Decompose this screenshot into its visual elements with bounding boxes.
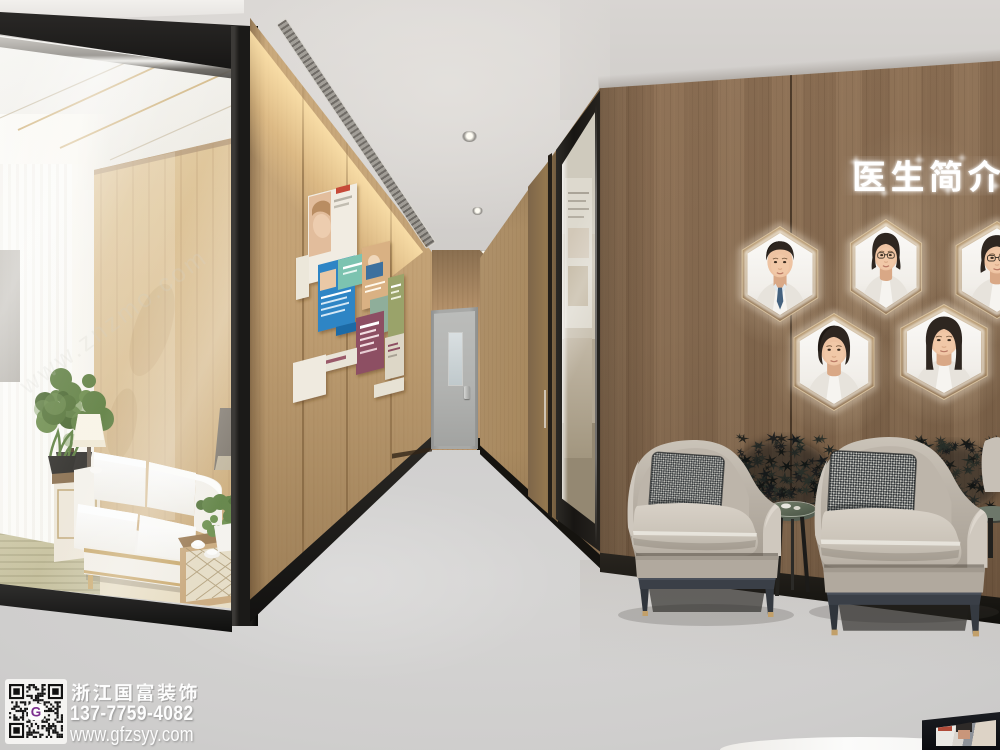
svg-text:G: G	[31, 705, 42, 720]
